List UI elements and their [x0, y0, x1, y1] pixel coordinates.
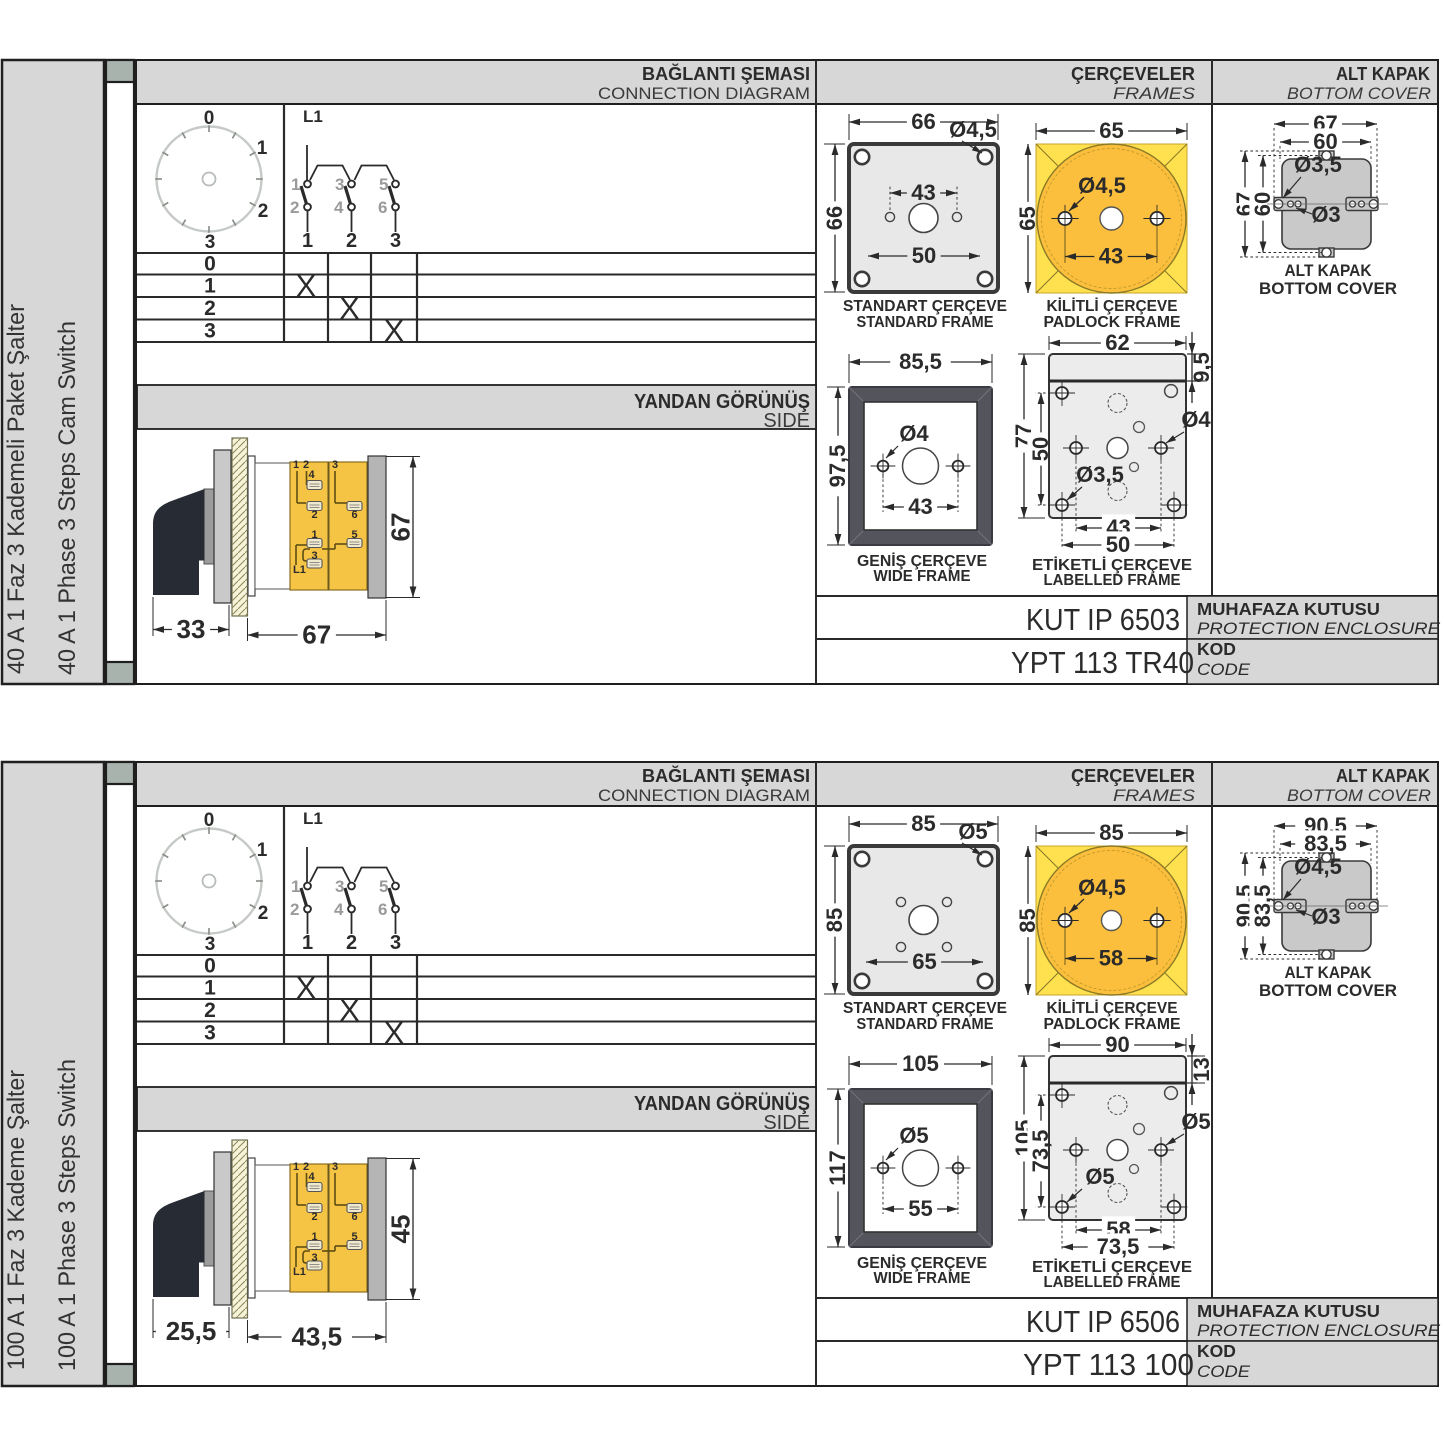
svg-text:73,5: 73,5: [1097, 1234, 1140, 1259]
svg-text:Ø4: Ø4: [899, 421, 929, 446]
svg-text:PROTECTION ENCLOSURE: PROTECTION ENCLOSURE: [1197, 620, 1441, 638]
svg-text:BOTTOM COVER: BOTTOM COVER: [1259, 982, 1397, 1000]
svg-text:5: 5: [351, 529, 357, 541]
svg-text:43: 43: [908, 494, 932, 519]
svg-text:58: 58: [1099, 946, 1123, 971]
svg-text:Ø3,5: Ø3,5: [1294, 152, 1342, 177]
svg-text:KUT IP 6503: KUT IP 6503: [1026, 602, 1180, 637]
svg-text:STANDART ÇERÇEVE: STANDART ÇERÇEVE: [843, 298, 1007, 315]
svg-text:L1: L1: [293, 1266, 306, 1278]
svg-text:LABELLED FRAME: LABELLED FRAME: [1044, 572, 1181, 589]
svg-text:55: 55: [908, 1196, 932, 1221]
svg-text:4: 4: [334, 198, 344, 217]
svg-text:CONNECTION DIAGRAM: CONNECTION DIAGRAM: [598, 84, 810, 103]
svg-text:ALT KAPAK: ALT KAPAK: [1285, 262, 1372, 280]
svg-text:2: 2: [311, 1211, 317, 1223]
svg-text:0: 0: [204, 108, 215, 129]
svg-text:PADLOCK FRAME: PADLOCK FRAME: [1044, 314, 1181, 331]
svg-text:5: 5: [379, 175, 388, 194]
svg-text:1: 1: [293, 1161, 299, 1173]
svg-text:Ø4,5: Ø4,5: [1078, 173, 1126, 198]
svg-text:3: 3: [204, 1022, 216, 1045]
svg-text:Ø4,5: Ø4,5: [1294, 854, 1342, 879]
svg-text:6: 6: [378, 198, 387, 217]
svg-text:X: X: [384, 1017, 404, 1050]
svg-text:KOD: KOD: [1197, 639, 1236, 659]
svg-text:85: 85: [1099, 820, 1123, 845]
svg-text:FRAMES: FRAMES: [1113, 786, 1196, 805]
svg-text:X: X: [339, 293, 359, 326]
svg-text:WIDE FRAME: WIDE FRAME: [874, 568, 971, 585]
svg-text:65: 65: [1015, 206, 1040, 230]
svg-text:2: 2: [311, 509, 317, 521]
svg-text:3: 3: [335, 877, 344, 896]
svg-text:6: 6: [351, 509, 357, 521]
svg-text:1: 1: [302, 230, 313, 252]
svg-text:YPT 113 TR40: YPT 113 TR40: [1011, 645, 1194, 680]
svg-text:X: X: [296, 972, 316, 1005]
svg-text:73,5: 73,5: [1028, 1130, 1053, 1173]
svg-text:33: 33: [177, 614, 206, 644]
svg-text:1: 1: [293, 459, 299, 471]
svg-text:L1: L1: [303, 107, 323, 126]
svg-text:2: 2: [346, 230, 357, 252]
svg-text:6: 6: [378, 900, 387, 919]
svg-text:2: 2: [290, 198, 299, 217]
svg-text:Ø4,5: Ø4,5: [1078, 875, 1126, 900]
svg-text:25,5: 25,5: [166, 1316, 217, 1346]
svg-text:67: 67: [385, 513, 415, 542]
svg-text:ÇERÇEVELER: ÇERÇEVELER: [1071, 766, 1195, 786]
svg-text:2: 2: [204, 999, 216, 1022]
svg-text:KUT IP 6506: KUT IP 6506: [1026, 1304, 1180, 1339]
svg-text:1: 1: [311, 529, 317, 541]
svg-text:85,5: 85,5: [899, 349, 942, 374]
svg-text:BAĞLANTI ŞEMASI: BAĞLANTI ŞEMASI: [642, 63, 810, 84]
svg-text:3: 3: [335, 175, 344, 194]
svg-text:83,5: 83,5: [1250, 885, 1275, 928]
svg-text:Ø5: Ø5: [899, 1123, 928, 1148]
svg-text:3: 3: [332, 1161, 338, 1173]
svg-text:4: 4: [308, 1171, 315, 1183]
svg-text:2: 2: [204, 297, 216, 320]
svg-text:1: 1: [257, 138, 268, 159]
svg-text:66: 66: [911, 109, 935, 134]
svg-text:60: 60: [1250, 192, 1275, 216]
svg-text:60: 60: [1313, 129, 1337, 154]
svg-text:Ø3: Ø3: [1311, 202, 1340, 227]
svg-text:Ø3: Ø3: [1311, 904, 1340, 929]
svg-text:X: X: [339, 995, 359, 1028]
svg-text:Ø5: Ø5: [1181, 1109, 1210, 1134]
svg-text:STANDARD FRAME: STANDARD FRAME: [857, 1016, 994, 1033]
svg-text:66: 66: [822, 206, 847, 230]
svg-text:MUHAFAZA KUTUSU: MUHAFAZA KUTUSU: [1197, 1301, 1380, 1321]
svg-text:WIDE FRAME: WIDE FRAME: [874, 1270, 971, 1287]
svg-text:5: 5: [351, 1231, 357, 1243]
svg-text:67: 67: [302, 619, 331, 649]
svg-text:PADLOCK FRAME: PADLOCK FRAME: [1044, 1016, 1181, 1033]
svg-text:0: 0: [204, 810, 215, 831]
svg-text:0: 0: [204, 253, 216, 276]
svg-text:40 A 1 Phase 3 Steps Cam Switc: 40 A 1 Phase 3 Steps Cam Switch: [54, 321, 81, 675]
svg-text:Ø5: Ø5: [958, 819, 987, 844]
svg-text:CODE: CODE: [1197, 1363, 1251, 1381]
svg-text:97,5: 97,5: [825, 445, 850, 488]
svg-text:SIDE: SIDE: [763, 410, 810, 432]
svg-text:KOD: KOD: [1197, 1341, 1236, 1361]
svg-text:X: X: [384, 315, 404, 348]
svg-text:2: 2: [258, 201, 269, 222]
svg-text:CONNECTION DIAGRAM: CONNECTION DIAGRAM: [598, 786, 810, 805]
svg-text:43,5: 43,5: [291, 1321, 342, 1351]
svg-text:85: 85: [1015, 908, 1040, 932]
svg-text:3: 3: [390, 932, 401, 954]
svg-text:3: 3: [205, 232, 216, 253]
svg-text:2: 2: [346, 932, 357, 954]
svg-text:105: 105: [902, 1051, 939, 1076]
svg-text:3: 3: [332, 459, 338, 471]
svg-text:65: 65: [1099, 118, 1123, 143]
svg-text:1: 1: [302, 932, 313, 954]
svg-text:KİLİTLİ ÇERÇEVE: KİLİTLİ ÇERÇEVE: [1047, 297, 1178, 315]
svg-text:LABELLED FRAME: LABELLED FRAME: [1044, 1274, 1181, 1291]
svg-text:40 A 1 Faz 3 Kademeli Paket Şa: 40 A 1 Faz 3 Kademeli Paket Şalter: [3, 304, 30, 674]
svg-text:2: 2: [258, 903, 269, 924]
svg-text:ALT KAPAK: ALT KAPAK: [1336, 766, 1430, 786]
svg-text:1: 1: [204, 977, 216, 1000]
svg-text:2: 2: [290, 900, 299, 919]
svg-text:ÇERÇEVELER: ÇERÇEVELER: [1071, 64, 1195, 84]
svg-text:ALT KAPAK: ALT KAPAK: [1285, 964, 1372, 982]
svg-text:Ø5: Ø5: [1085, 1164, 1114, 1189]
svg-text:1: 1: [311, 1231, 317, 1243]
svg-text:STANDART ÇERÇEVE: STANDART ÇERÇEVE: [843, 1000, 1007, 1017]
svg-text:BOTTOM COVER: BOTTOM COVER: [1287, 786, 1431, 805]
svg-text:X: X: [296, 270, 316, 303]
svg-text:1: 1: [204, 275, 216, 298]
svg-text:Ø3,5: Ø3,5: [1076, 462, 1124, 487]
svg-text:Ø4: Ø4: [1181, 407, 1211, 432]
svg-text:100 A 1 Phase 3 Steps Switch: 100 A 1 Phase 3 Steps Switch: [54, 1059, 81, 1371]
svg-text:50: 50: [1028, 437, 1053, 461]
svg-text:BAĞLANTI ŞEMASI: BAĞLANTI ŞEMASI: [642, 765, 810, 786]
svg-text:3: 3: [311, 1252, 317, 1264]
svg-text:4: 4: [308, 469, 315, 481]
svg-text:STANDARD FRAME: STANDARD FRAME: [857, 314, 994, 331]
svg-text:50: 50: [912, 243, 936, 268]
svg-text:KİLİTLİ ÇERÇEVE: KİLİTLİ ÇERÇEVE: [1047, 999, 1178, 1017]
svg-text:CODE: CODE: [1197, 661, 1251, 679]
svg-text:L1: L1: [293, 564, 306, 576]
svg-text:100 A 1 Faz 3 Kademe Şalter: 100 A 1 Faz 3 Kademe Şalter: [3, 1070, 30, 1370]
svg-text:BOTTOM COVER: BOTTOM COVER: [1287, 84, 1431, 103]
svg-text:PROTECTION ENCLOSURE: PROTECTION ENCLOSURE: [1197, 1322, 1441, 1340]
svg-text:9,5: 9,5: [1189, 352, 1214, 383]
svg-text:85: 85: [822, 908, 847, 932]
svg-text:SIDE: SIDE: [763, 1112, 810, 1134]
svg-text:62: 62: [1105, 330, 1129, 355]
svg-text:85: 85: [911, 811, 935, 836]
svg-text:13: 13: [1189, 1057, 1214, 1081]
svg-text:YPT 113 100: YPT 113 100: [1023, 1347, 1194, 1382]
svg-text:5: 5: [379, 877, 388, 896]
svg-text:65: 65: [912, 949, 936, 974]
svg-text:3: 3: [204, 320, 216, 343]
svg-text:117: 117: [825, 1150, 850, 1186]
svg-text:43: 43: [911, 180, 935, 205]
svg-text:3: 3: [311, 550, 317, 562]
svg-text:1: 1: [291, 877, 300, 896]
svg-text:FRAMES: FRAMES: [1113, 84, 1196, 103]
svg-text:3: 3: [205, 934, 216, 955]
svg-text:0: 0: [204, 955, 216, 978]
svg-text:43: 43: [1099, 244, 1123, 269]
svg-text:1: 1: [257, 840, 268, 861]
svg-text:45: 45: [385, 1215, 415, 1244]
svg-text:83,5: 83,5: [1304, 831, 1347, 856]
svg-text:1: 1: [291, 175, 300, 194]
svg-text:Ø4,5: Ø4,5: [949, 117, 997, 142]
svg-text:BOTTOM COVER: BOTTOM COVER: [1259, 280, 1397, 298]
svg-text:ALT KAPAK: ALT KAPAK: [1336, 64, 1430, 84]
svg-text:6: 6: [351, 1211, 357, 1223]
svg-text:3: 3: [390, 230, 401, 252]
svg-text:MUHAFAZA KUTUSU: MUHAFAZA KUTUSU: [1197, 599, 1380, 619]
svg-text:L1: L1: [303, 809, 323, 828]
svg-text:50: 50: [1106, 532, 1130, 557]
svg-text:90: 90: [1105, 1032, 1129, 1057]
svg-text:4: 4: [334, 900, 344, 919]
